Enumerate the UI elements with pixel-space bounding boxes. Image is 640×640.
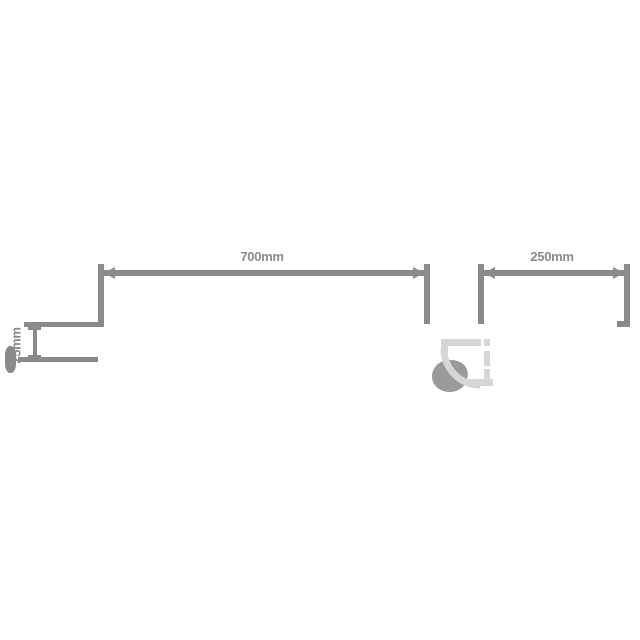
profile-depth-tick-bottom: [28, 355, 41, 360]
door-panel-closed-dash: [484, 351, 490, 366]
side-width-extension-line-right: [624, 264, 630, 327]
main-width-dimension-line: [104, 270, 424, 276]
door-bottom-bar: [469, 379, 493, 386]
profile-depth-dimension-line: [33, 328, 37, 358]
profile-label-smudge: [5, 346, 16, 373]
diagram-canvas: 700mm 250mm 25mm: [0, 0, 640, 640]
dimension-arrow-right-icon: [413, 267, 424, 279]
main-width-dimension-label: 700mm: [182, 249, 342, 265]
profile-depth-tick-top: [28, 325, 41, 330]
door-panel-open-end-tick: [441, 339, 448, 353]
dimension-arrow-left-icon: [104, 267, 115, 279]
door-panel-closed-dash: [484, 339, 490, 346]
dimension-arrow-right-icon: [613, 267, 624, 279]
side-width-extension-foot: [617, 321, 625, 327]
dimension-arrow-left-icon: [484, 267, 495, 279]
side-width-dimension-line: [484, 270, 624, 276]
main-width-extension-line-right: [424, 264, 430, 324]
side-width-dimension-label: 250mm: [472, 249, 632, 265]
